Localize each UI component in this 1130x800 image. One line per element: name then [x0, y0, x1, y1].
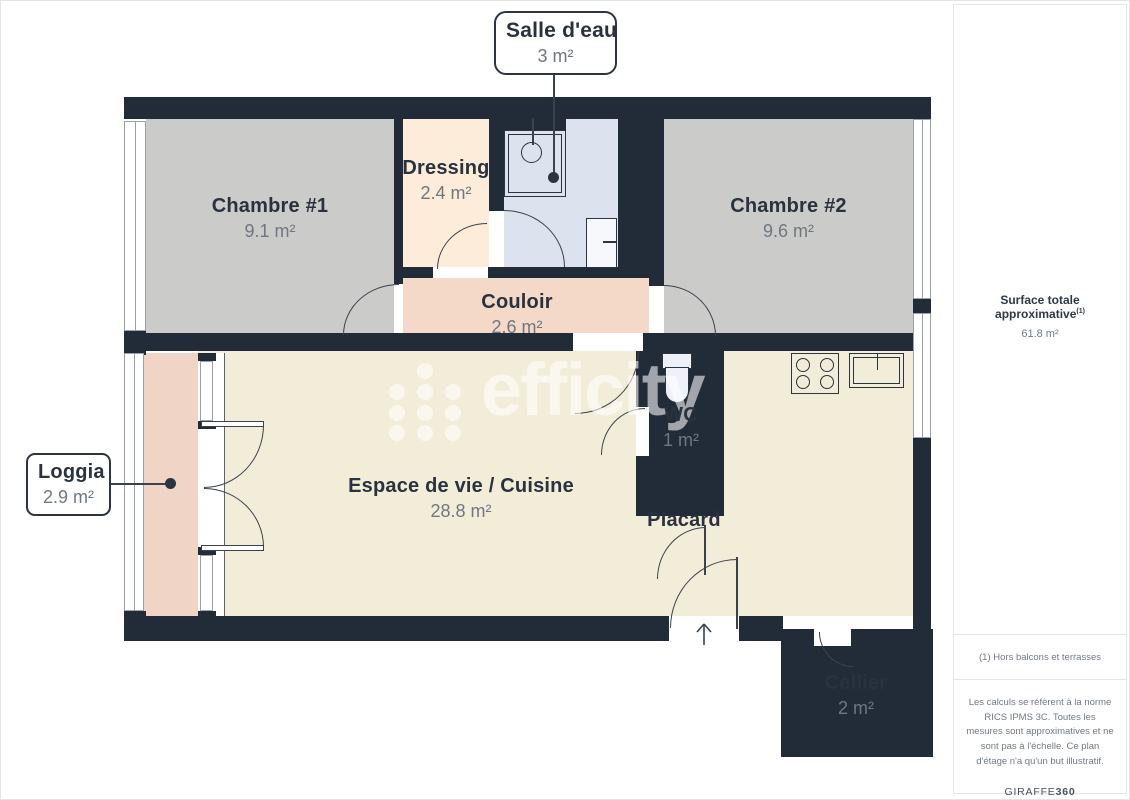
- sidebar-main-section: Surface totale approximative(1) 61.8 m²: [954, 5, 1126, 635]
- footnote-section: (1) Hors balcons et terrasses: [954, 635, 1126, 680]
- loggia-name: Loggia: [38, 461, 99, 484]
- wall-bottom-right: [739, 616, 783, 641]
- loggia-leader-line: [108, 483, 168, 485]
- couloir-label: Couloir 2.6 m²: [437, 291, 597, 338]
- wall-right-sep: [913, 299, 931, 313]
- loggia-leader-dot: [165, 478, 176, 489]
- salle-deau-name: Salle d'eau: [506, 19, 605, 43]
- chambre2-label: Chambre #2 9.6 m²: [664, 195, 913, 242]
- door-leaf-french-lower: [201, 545, 264, 551]
- loggia-area: 2.9 m²: [38, 487, 99, 508]
- info-sidebar: Surface totale approximative(1) 61.8 m² …: [953, 4, 1127, 794]
- door-leaf-placard: [704, 525, 706, 575]
- dressing-label: Dressing 2.4 m²: [388, 157, 504, 204]
- window-chambre2: [913, 119, 931, 299]
- wall-salle-bottom: [504, 267, 618, 278]
- total-surface-block: Surface totale approximative(1) 61.8 m²: [954, 293, 1126, 340]
- wall-loggia-cap4: [198, 611, 216, 619]
- chambre1-label: Chambre #1 9.1 m²: [146, 195, 394, 242]
- wall-couloir-chambre2: [649, 273, 664, 286]
- legal-text: Les calculs se réfèrent à la norme RICS …: [966, 696, 1114, 770]
- wall-salle-notch: [504, 118, 566, 130]
- wc-label: WC 1 m²: [651, 404, 711, 451]
- salle-deau-leader-line: [553, 71, 555, 175]
- salle-deau-callout: Salle d'eau 3 m²: [494, 11, 617, 75]
- wall-loggia-cap1: [198, 353, 216, 361]
- window-pane-loggia-bottom: [200, 555, 213, 611]
- total-surface-label: Surface totale approximative(1): [954, 293, 1126, 321]
- toilet-bowl: [665, 367, 689, 403]
- opening-salle-door: [489, 211, 504, 267]
- window-chambre1: [124, 121, 146, 331]
- washbasin: [586, 218, 617, 268]
- placard-label: Placard: [624, 509, 744, 532]
- wall-salle-chambre2: [618, 118, 664, 278]
- wall-top: [124, 97, 931, 119]
- giraffe360-logo: GIRAFFE360: [966, 786, 1114, 798]
- door-leaf-french-upper: [201, 421, 264, 427]
- kitchen-sink: [849, 353, 904, 388]
- espace-label: Espace de vie / Cuisine 28.8 m²: [311, 475, 611, 522]
- legal-section: Les calculs se réfèrent à la norme RICS …: [954, 680, 1126, 798]
- entrance-arrow-icon: [692, 619, 716, 647]
- loggia-callout: Loggia 2.9 m²: [26, 453, 111, 516]
- window-living: [913, 313, 931, 438]
- stove: [791, 353, 839, 394]
- shower-tray: [504, 130, 566, 197]
- footnote-marker: (1): [1076, 308, 1085, 315]
- salle-deau-leader-dot: [548, 172, 559, 183]
- door-leaf-entrance: [736, 557, 738, 629]
- salle-deau-area: 3 m²: [506, 46, 605, 67]
- footnote-text: (1) Hors balcons et terrasses: [979, 652, 1101, 663]
- wall-right-lower: [913, 438, 931, 641]
- cellier-label: Cellier 2 m²: [799, 672, 913, 719]
- floor-plan-page: Salle d'eau 3 m² Loggia 2.9 m² Chambre #…: [0, 0, 1130, 800]
- window-pane-loggia-top: [200, 361, 213, 421]
- shower-head-icon: [521, 142, 542, 163]
- opening-chambre2-door: [649, 286, 664, 333]
- window-loggia: [124, 353, 144, 611]
- wall-bottom-left: [124, 616, 669, 641]
- shower-head-stem: [532, 118, 534, 145]
- total-surface-value: 61.8 m²: [954, 328, 1126, 340]
